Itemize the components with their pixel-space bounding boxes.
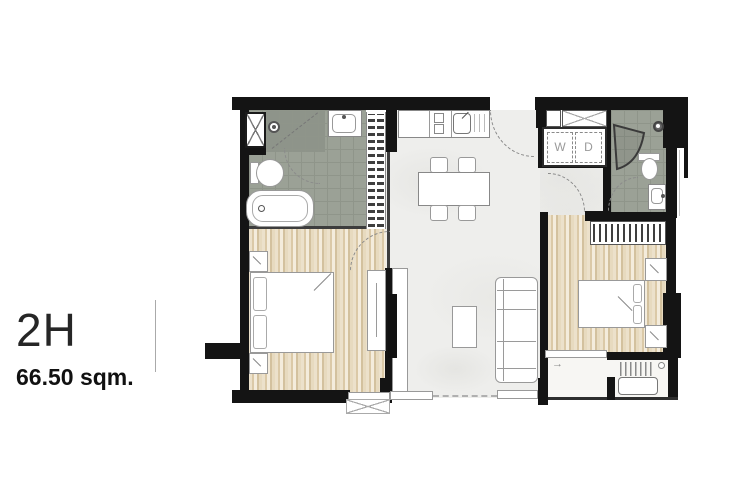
dryer-label: D	[575, 132, 602, 163]
master-pillow-1	[253, 277, 267, 311]
balcony-post	[607, 377, 615, 400]
hob-burner-2	[434, 124, 444, 134]
sliding-door-living	[433, 395, 497, 397]
wall-bedroom2-door-post	[585, 211, 607, 221]
faucet-1-icon	[342, 115, 346, 119]
bedroom2-wardrobe-rail	[593, 224, 663, 242]
wall-bottom-master	[232, 390, 350, 403]
closet-rail-left	[368, 114, 375, 227]
wall-entry-post	[536, 97, 546, 128]
bedroom2-pillow-2	[633, 305, 642, 324]
shower-head-2-dot-icon	[656, 124, 660, 128]
slope-arrow-icon: →	[552, 358, 563, 370]
master-pillow-2	[253, 315, 267, 349]
bedroom2-pillow-1	[633, 284, 642, 303]
wall-top-left	[232, 97, 490, 110]
dining-table	[418, 172, 490, 206]
toilet-1-bowl	[256, 159, 284, 187]
faucet-2-icon	[661, 194, 665, 198]
wall-stub-exterior	[205, 343, 241, 359]
window-glass-right	[679, 150, 680, 216]
washer-label: W	[547, 132, 573, 163]
wall-duct-bottom	[245, 148, 266, 155]
window-sill-living-right	[497, 390, 538, 399]
ac-condenser-unit	[618, 377, 658, 395]
wall-outer-right-thin	[684, 103, 688, 178]
hob-burner-1	[434, 113, 444, 123]
tv	[388, 294, 397, 358]
storage-closet	[562, 110, 607, 127]
closet-rail-right	[377, 114, 384, 227]
window-sill-living-left	[390, 391, 433, 400]
drainboard-line-2	[479, 114, 480, 132]
wall-balcony-right	[668, 358, 678, 400]
duct-shaft	[245, 112, 266, 148]
shower-head-dot-icon	[272, 125, 276, 129]
toilet-2-bowl	[641, 158, 658, 180]
ac-louver-marks	[620, 362, 654, 376]
sliding-door-bedroom2	[545, 350, 607, 358]
bathtub-drain-icon	[258, 205, 265, 212]
master-wardrobe-handle	[376, 283, 377, 337]
kitchen-counter	[398, 110, 490, 138]
shoe-cabinet	[546, 110, 561, 127]
wall-living-bottom-post-right	[538, 378, 548, 405]
label-divider	[155, 300, 156, 372]
coffee-table	[452, 306, 477, 348]
wall-right-mid	[666, 218, 676, 296]
sofa-front-edge	[503, 279, 504, 381]
dining-chair-4	[458, 205, 476, 221]
wall-bedroom2-bottom	[607, 352, 668, 360]
ac-ledge-box	[346, 399, 390, 414]
unit-code-label: 2H	[16, 303, 77, 357]
kitchen-divider-1	[429, 111, 430, 137]
wall-closet-post	[386, 97, 397, 152]
wall-bedroom2-left	[540, 212, 548, 403]
unit-area-label: 66.50 sqm.	[16, 364, 134, 391]
wall-bathroom2-bottom	[605, 212, 668, 221]
kitchen-divider-2	[451, 111, 452, 137]
floor-plan-canvas: 2H 66.50 sqm.	[0, 0, 750, 500]
dining-chair-2	[458, 157, 476, 173]
dining-chair-1	[430, 157, 448, 173]
drain-icon	[658, 362, 665, 369]
drainboard-line-1	[474, 114, 475, 132]
dining-chair-3	[430, 205, 448, 221]
wall-bathroom2-right	[666, 108, 677, 218]
drainboard-line-3	[484, 114, 485, 132]
